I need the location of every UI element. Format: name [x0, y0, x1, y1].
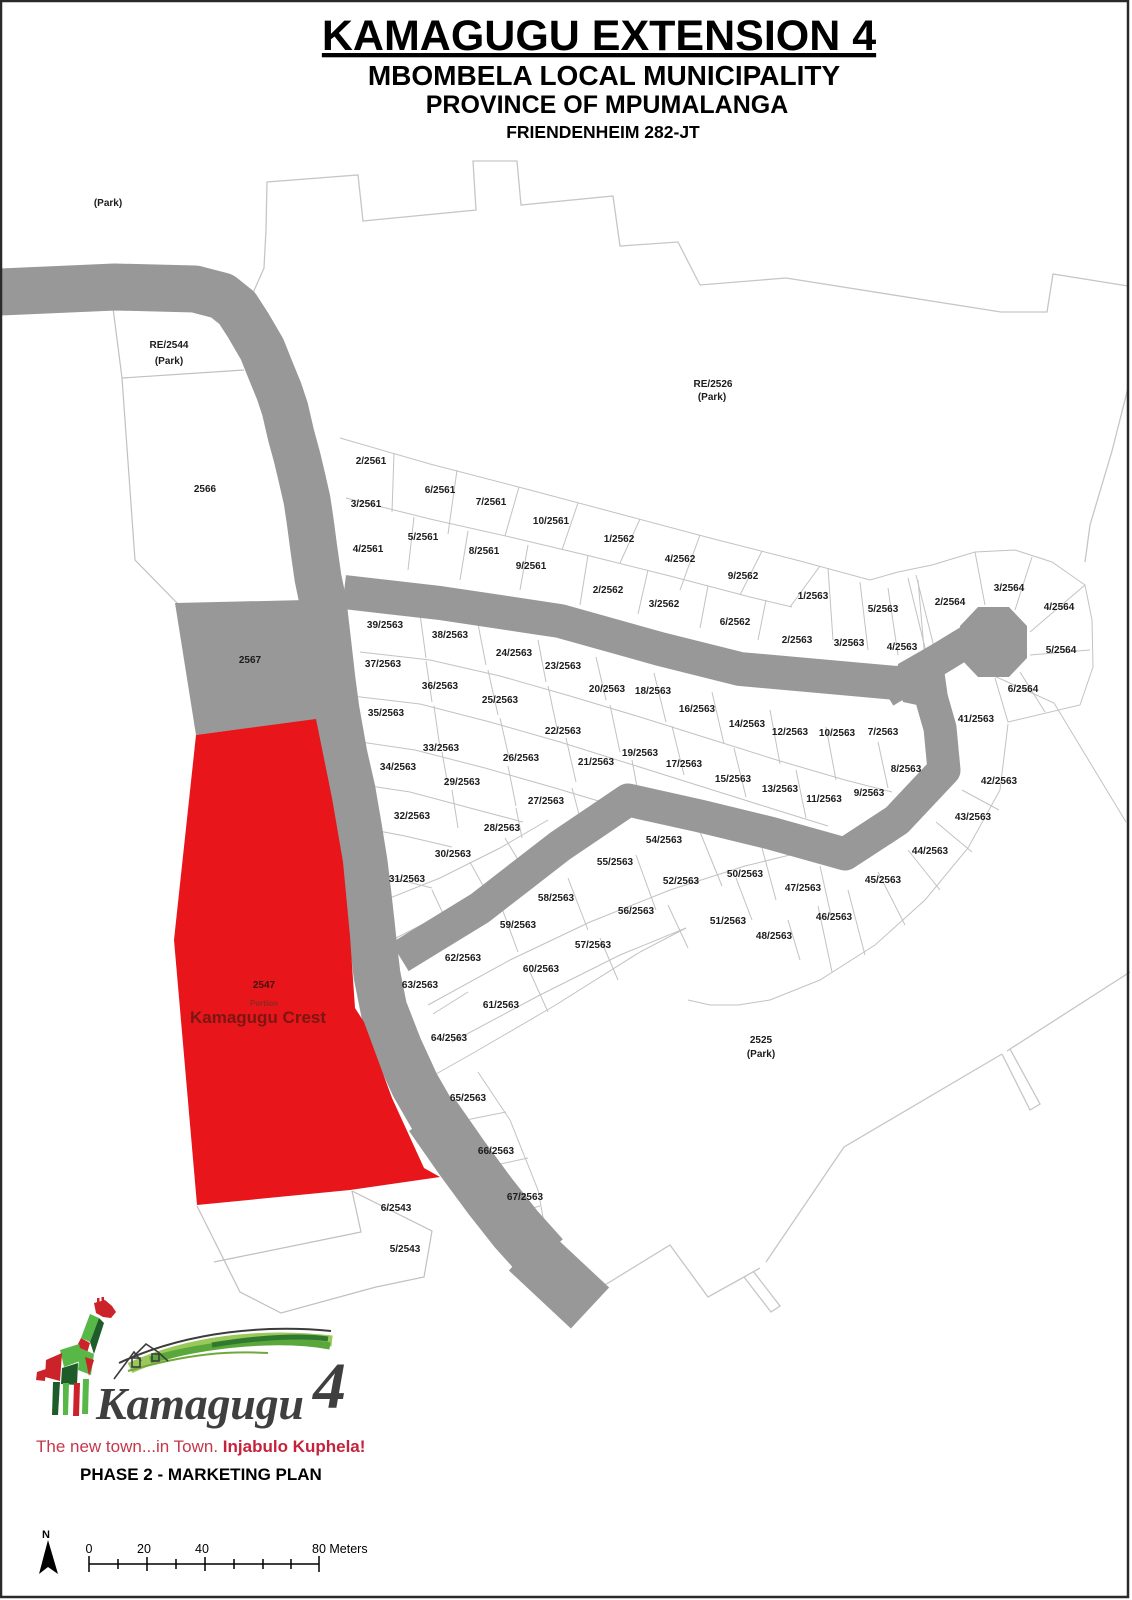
svg-text:21/2563: 21/2563 [578, 757, 615, 768]
svg-text:PROVINCE OF MPUMALANGA: PROVINCE OF MPUMALANGA [426, 91, 789, 119]
svg-text:59/2563: 59/2563 [500, 920, 537, 931]
svg-text:58/2563: 58/2563 [538, 893, 575, 904]
svg-text:51/2563: 51/2563 [710, 916, 747, 927]
svg-text:20/2563: 20/2563 [589, 684, 626, 695]
svg-text:28/2563: 28/2563 [484, 823, 521, 834]
svg-text:9/2563: 9/2563 [854, 788, 885, 799]
svg-text:FRIENDENHEIM 282-JT: FRIENDENHEIM 282-JT [506, 122, 700, 142]
svg-text:11/2563: 11/2563 [806, 794, 842, 805]
svg-text:1/2562: 1/2562 [604, 534, 635, 545]
svg-text:2547: 2547 [253, 980, 276, 991]
svg-text:0: 0 [86, 1542, 93, 1556]
svg-text:2/2561: 2/2561 [356, 456, 387, 467]
svg-text:8/2561: 8/2561 [469, 546, 500, 557]
svg-text:30/2563: 30/2563 [435, 849, 472, 860]
svg-text:15/2563: 15/2563 [715, 774, 752, 785]
svg-text:4/2561: 4/2561 [353, 544, 384, 555]
svg-text:66/2563: 66/2563 [478, 1146, 515, 1157]
svg-text:4/2563: 4/2563 [887, 642, 918, 653]
svg-text:PHASE 2 - MARKETING PLAN: PHASE 2 - MARKETING PLAN [80, 1465, 322, 1484]
svg-text:61/2563: 61/2563 [483, 1000, 520, 1011]
svg-text:5/2564: 5/2564 [1046, 645, 1077, 656]
svg-text:29/2563: 29/2563 [444, 777, 481, 788]
svg-text:63/2563: 63/2563 [402, 980, 439, 991]
svg-text:17/2563: 17/2563 [666, 759, 703, 770]
svg-text:67/2563: 67/2563 [507, 1192, 544, 1203]
svg-text:35/2563: 35/2563 [368, 708, 405, 719]
svg-text:3/2562: 3/2562 [649, 599, 680, 610]
svg-text:2525: 2525 [750, 1035, 773, 1046]
svg-text:57/2563: 57/2563 [575, 940, 612, 951]
svg-text:12/2563: 12/2563 [772, 727, 809, 738]
svg-text:64/2563: 64/2563 [431, 1033, 468, 1044]
svg-text:32/2563: 32/2563 [394, 811, 431, 822]
svg-text:KAMAGUGU EXTENSION 4: KAMAGUGU EXTENSION 4 [322, 12, 876, 60]
svg-text:(Park): (Park) [155, 356, 183, 367]
svg-text:6/2564: 6/2564 [1008, 684, 1039, 695]
svg-text:7/2563: 7/2563 [868, 727, 899, 738]
svg-text:10/2561: 10/2561 [533, 516, 570, 527]
svg-text:80 Meters: 80 Meters [312, 1542, 368, 1556]
svg-text:4/2564: 4/2564 [1044, 602, 1075, 613]
svg-text:20: 20 [137, 1542, 151, 1556]
svg-text:18/2563: 18/2563 [635, 686, 672, 697]
svg-text:9/2562: 9/2562 [728, 571, 759, 582]
svg-text:The new town...in Town. Injabu: The new town...in Town. Injabulo Kuphela… [36, 1437, 365, 1456]
svg-text:16/2563: 16/2563 [679, 704, 716, 715]
svg-text:40: 40 [195, 1542, 209, 1556]
svg-text:62/2563: 62/2563 [445, 953, 482, 964]
svg-text:1/2563: 1/2563 [798, 591, 829, 602]
svg-text:25/2563: 25/2563 [482, 695, 519, 706]
svg-text:2/2562: 2/2562 [593, 585, 624, 596]
svg-text:2/2563: 2/2563 [782, 635, 813, 646]
svg-text:52/2563: 52/2563 [663, 876, 700, 887]
svg-text:6/2562: 6/2562 [720, 617, 751, 628]
svg-text:24/2563: 24/2563 [496, 648, 533, 659]
svg-text:(Park): (Park) [747, 1049, 775, 1060]
svg-text:45/2563: 45/2563 [865, 875, 902, 886]
svg-text:46/2563: 46/2563 [816, 912, 853, 923]
svg-text:Portion: Portion [250, 999, 278, 1008]
svg-text:9/2561: 9/2561 [516, 561, 547, 572]
svg-text:65/2563: 65/2563 [450, 1093, 487, 1104]
svg-text:5/2561: 5/2561 [408, 532, 439, 543]
svg-text:5/2563: 5/2563 [868, 604, 899, 615]
svg-text:3/2563: 3/2563 [834, 638, 865, 649]
svg-text:3/2564: 3/2564 [994, 583, 1025, 594]
svg-text:36/2563: 36/2563 [422, 681, 459, 692]
svg-text:54/2563: 54/2563 [646, 835, 683, 846]
svg-text:6/2561: 6/2561 [425, 485, 456, 496]
svg-text:(Park): (Park) [698, 392, 726, 403]
svg-text:37/2563: 37/2563 [365, 659, 402, 670]
svg-text:MBOMBELA LOCAL MUNICIPALITY: MBOMBELA LOCAL MUNICIPALITY [368, 60, 841, 91]
svg-text:39/2563: 39/2563 [367, 620, 404, 631]
svg-text:8/2563: 8/2563 [891, 764, 922, 775]
svg-text:4: 4 [311, 1350, 346, 1423]
svg-text:2566: 2566 [194, 484, 217, 495]
svg-text:41/2563: 41/2563 [958, 714, 995, 725]
svg-text:56/2563: 56/2563 [618, 906, 655, 917]
svg-text:(Park): (Park) [94, 198, 122, 209]
svg-text:23/2563: 23/2563 [545, 661, 582, 672]
svg-text:34/2563: 34/2563 [380, 762, 417, 773]
svg-text:7/2561: 7/2561 [476, 497, 507, 508]
svg-text:50/2563: 50/2563 [727, 869, 764, 880]
svg-text:48/2563: 48/2563 [756, 931, 793, 942]
svg-text:31/2563: 31/2563 [389, 874, 426, 885]
svg-text:38/2563: 38/2563 [432, 630, 469, 641]
svg-text:10/2563: 10/2563 [819, 728, 856, 739]
svg-text:6/2543: 6/2543 [381, 1203, 412, 1214]
svg-text:26/2563: 26/2563 [503, 753, 540, 764]
svg-text:2/2564: 2/2564 [935, 597, 966, 608]
svg-text:44/2563: 44/2563 [912, 846, 949, 857]
svg-text:22/2563: 22/2563 [545, 726, 582, 737]
svg-text:RE/2544: RE/2544 [150, 340, 189, 351]
svg-text:4/2562: 4/2562 [665, 554, 696, 565]
svg-text:5/2543: 5/2543 [390, 1244, 421, 1255]
svg-text:N: N [42, 1529, 50, 1541]
svg-text:33/2563: 33/2563 [423, 743, 460, 754]
svg-text:43/2563: 43/2563 [955, 812, 992, 823]
svg-text:13/2563: 13/2563 [762, 784, 799, 795]
svg-text:3/2561: 3/2561 [351, 499, 382, 510]
svg-text:42/2563: 42/2563 [981, 776, 1018, 787]
svg-text:Kamagugu: Kamagugu [95, 1378, 304, 1429]
svg-text:2567: 2567 [239, 655, 262, 666]
svg-text:55/2563: 55/2563 [597, 857, 634, 868]
svg-text:14/2563: 14/2563 [729, 719, 766, 730]
svg-text:27/2563: 27/2563 [528, 796, 565, 807]
svg-text:47/2563: 47/2563 [785, 883, 822, 894]
svg-text:Kamagugu Crest: Kamagugu Crest [190, 1008, 326, 1027]
svg-text:60/2563: 60/2563 [523, 964, 560, 975]
svg-text:RE/2526: RE/2526 [694, 379, 733, 390]
svg-text:19/2563: 19/2563 [622, 748, 659, 759]
